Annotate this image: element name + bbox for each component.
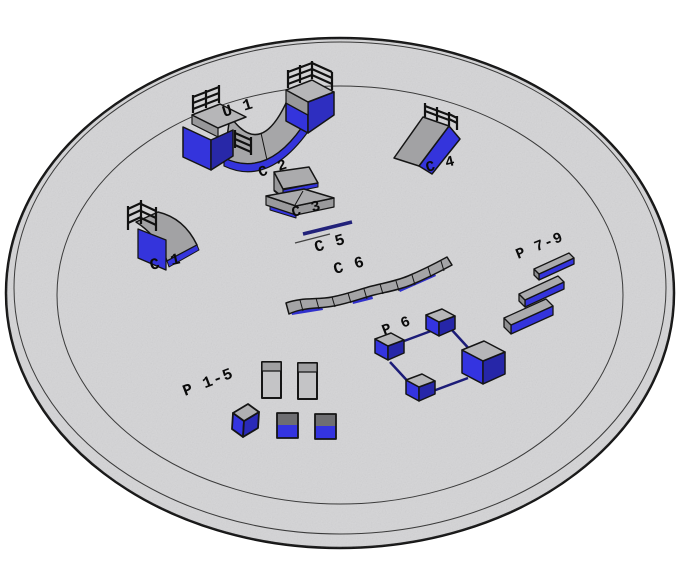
concrete-texture bbox=[6, 38, 674, 548]
platform-slab bbox=[6, 38, 674, 548]
skatepark-render: U 1 C 1 C 2 C 3 C 4 C 5 C 6 P 6 P 1-5 P … bbox=[0, 0, 680, 579]
scene-canvas: U 1 C 1 C 2 C 3 C 4 C 5 C 6 P 6 P 1-5 P … bbox=[0, 0, 680, 579]
